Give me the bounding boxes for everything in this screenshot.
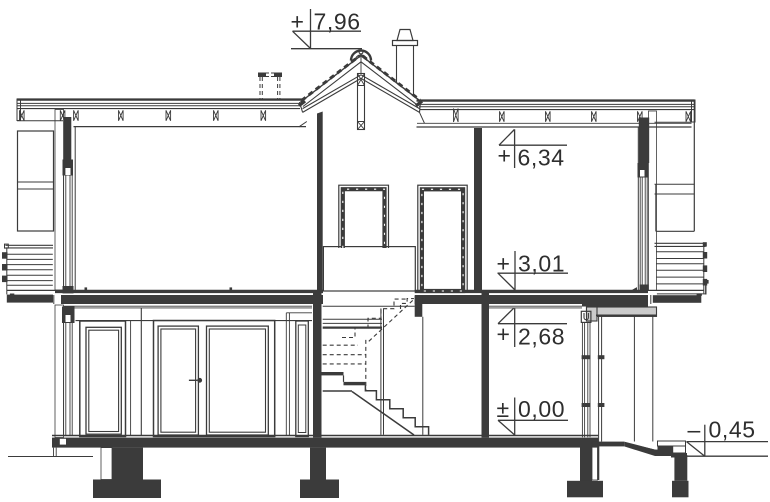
- svg-text:±: ±: [497, 396, 510, 422]
- svg-text:0,45: 0,45: [709, 417, 756, 443]
- svg-text:+: +: [291, 9, 304, 35]
- svg-text:3,01: 3,01: [518, 251, 565, 277]
- svg-text:0,00: 0,00: [518, 396, 565, 422]
- svg-text:2,68: 2,68: [518, 324, 565, 350]
- svg-text:7,96: 7,96: [314, 9, 361, 35]
- svg-text:–: –: [688, 417, 701, 443]
- svg-text:6,34: 6,34: [518, 145, 565, 171]
- svg-text:+: +: [498, 143, 511, 169]
- svg-text:+: +: [497, 251, 510, 277]
- svg-text:+: +: [497, 321, 510, 347]
